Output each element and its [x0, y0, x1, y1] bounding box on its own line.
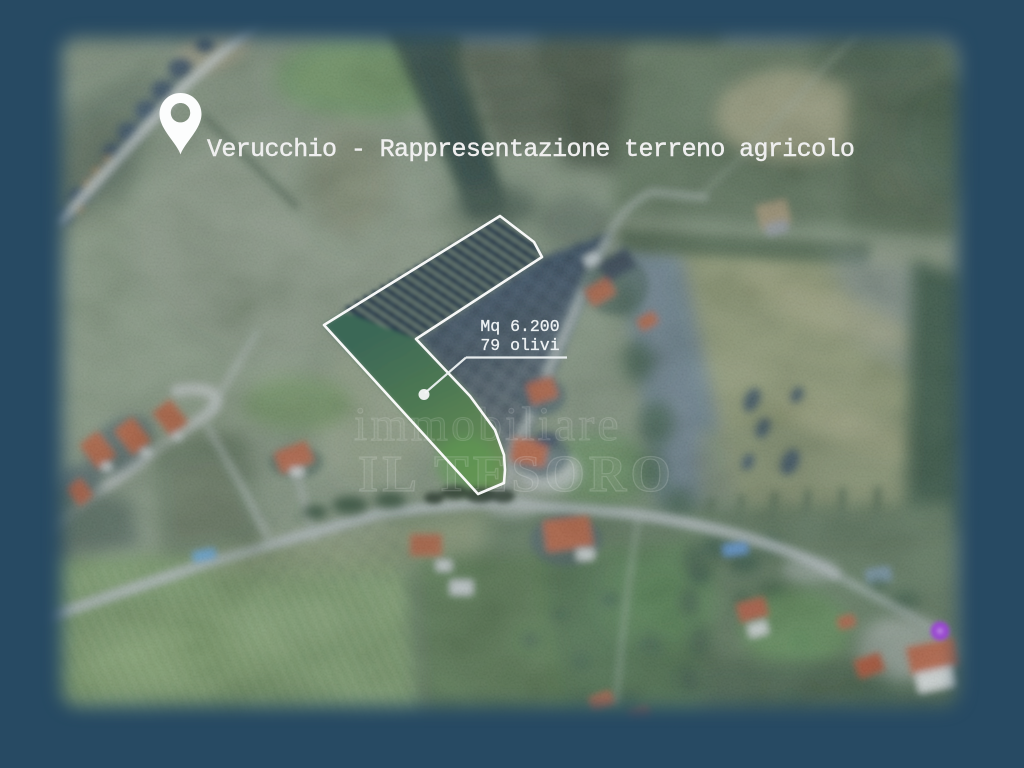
svg-text:IL TESORO: IL TESORO [358, 446, 675, 503]
svg-text:immobiliare: immobiliare [354, 398, 622, 451]
svg-text:79 olivi: 79 olivi [480, 336, 559, 355]
svg-text:Mq 6.200: Mq 6.200 [480, 317, 559, 336]
svg-text:Verucchio - Rappresentazione t: Verucchio - Rappresentazione terreno agr… [207, 135, 854, 164]
